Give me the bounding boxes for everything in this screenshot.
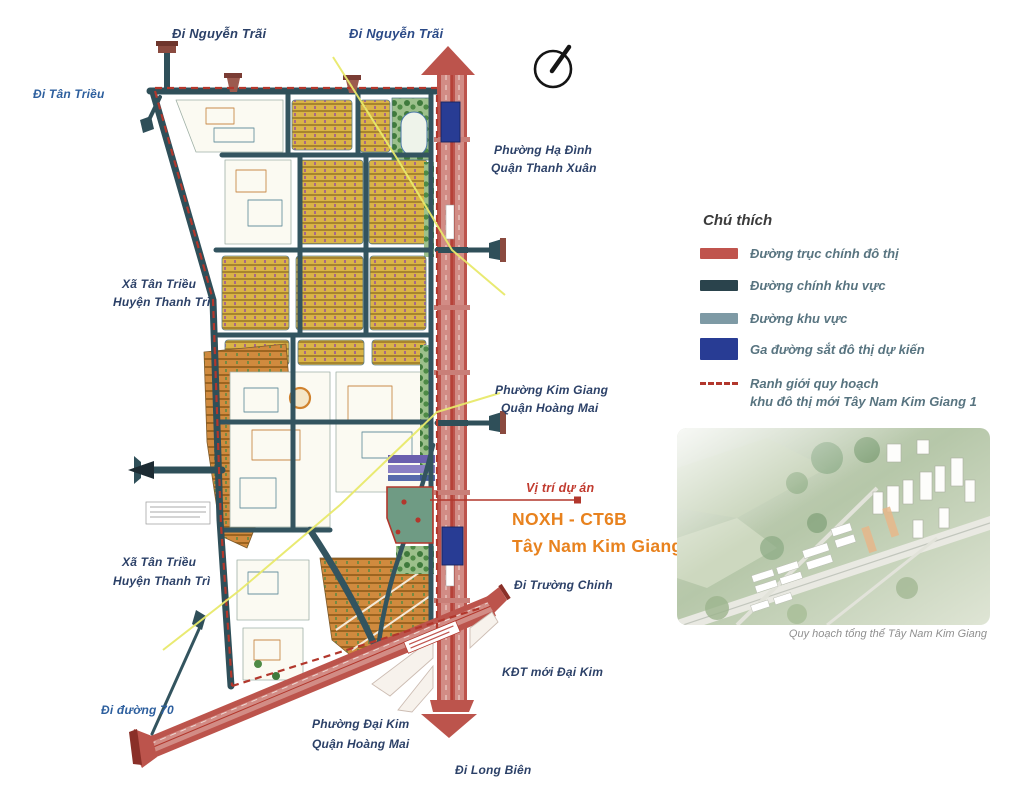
- legend-swatch-boundary-dashed: [700, 382, 738, 385]
- legend-item-boundary: Ranh giới quy hoạch khu đô thị mới Tây N…: [700, 376, 879, 391]
- aerial-render-graphic: [677, 428, 990, 625]
- project-site: [387, 487, 433, 543]
- label-di-truong-chinh: Đi Trường Chinh: [514, 578, 613, 592]
- legend-swatch-area-road: [700, 313, 738, 324]
- label-phuong-ha-dinh: Phường Hạ Đình: [494, 143, 592, 157]
- project-location-label: Vị trí dự án: [526, 481, 594, 495]
- aerial-render-image: [677, 428, 990, 625]
- label-xa-tan-trieu-1: Xã Tân Triều: [122, 277, 196, 291]
- legend-item-metro-station: Ga đường sắt đô thị dự kiến: [700, 338, 925, 360]
- legend-swatch-metro-station: [700, 338, 738, 360]
- legend-swatch-regional-road: [700, 280, 738, 291]
- label-di-nguyen-trai-left: Đi Nguyễn Trãi: [172, 26, 266, 41]
- master-plan-infographic: Đi Nguyễn Trãi Đi Nguyễn Trãi Đi Tân Tri…: [0, 0, 1024, 803]
- project-name-line1: NOXH - CT6B: [512, 509, 627, 530]
- aerial-caption: Quy hoạch tổng thể Tây Nam Kim Giang: [677, 628, 987, 640]
- legend-item-regional-road: Đường chính khu vực: [700, 278, 886, 293]
- label-huyen-thanh-tri-1: Huyện Thanh Trì: [113, 295, 210, 309]
- label-quan-hoang-mai-1: Quận Hoàng Mai: [501, 401, 598, 415]
- project-name-line2: Tây Nam Kim Giang: [512, 536, 682, 557]
- label-huyen-thanh-tri-2: Huyện Thanh Trì: [113, 574, 210, 588]
- label-phuong-dai-kim: Phường Đại Kim: [312, 717, 409, 731]
- legend-item-main-road: Đường trục chính đô thị: [700, 246, 899, 261]
- label-di-nguyen-trai-right: Đi Nguyễn Trãi: [349, 26, 443, 41]
- legend-swatch-main-road: [700, 248, 738, 259]
- label-xa-tan-trieu-2: Xã Tân Triều: [122, 555, 196, 569]
- label-phuong-kim-giang: Phường Kim Giang: [495, 383, 608, 397]
- label-di-long-bien: Đi Long Biên: [455, 763, 531, 777]
- legend-item-area-road: Đường khu vực: [700, 311, 847, 326]
- label-quan-hoang-mai-2: Quận Hoàng Mai: [312, 737, 409, 751]
- north-compass-icon: [535, 47, 571, 87]
- label-quan-thanh-xuan: Quận Thanh Xuân: [491, 161, 597, 175]
- label-di-duong-70: Đi đường 70: [101, 703, 174, 717]
- legend-title: Chú thích: [703, 212, 772, 229]
- label-di-tan-trieu: Đi Tân Triều: [33, 87, 105, 101]
- label-kdt-moi-dai-kim: KĐT mới Đại Kim: [502, 665, 603, 679]
